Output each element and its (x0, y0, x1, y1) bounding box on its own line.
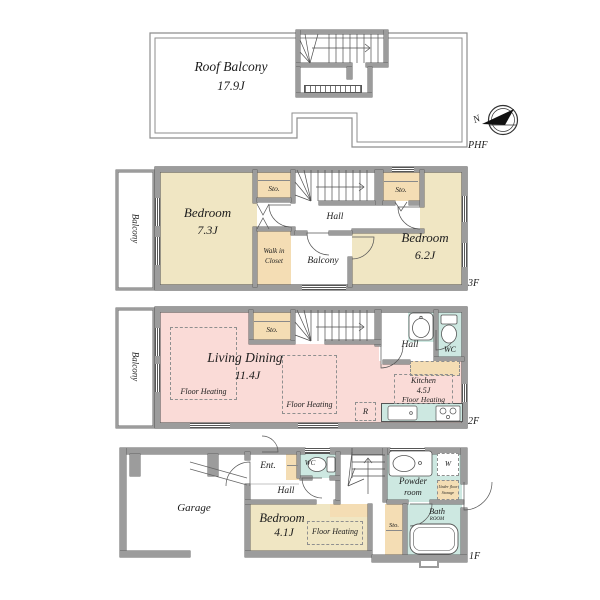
wall (319, 201, 375, 205)
floor-label-phf: PHF (468, 141, 498, 151)
living-dining-area: 11.4J (200, 369, 295, 381)
wall (120, 551, 190, 557)
walk-in-closet-label-1: Walk in (258, 248, 290, 255)
refrigerator-label: R (355, 407, 376, 416)
wall (296, 30, 388, 34)
wc-2f-label: WC (440, 346, 460, 354)
storage-2f-label: Sto. (254, 326, 290, 334)
window (190, 423, 230, 428)
bedroom-6-2-label: Bedroom (380, 231, 470, 244)
floor-label-2f: 2F (468, 417, 494, 427)
kitchen-area: 4.5J (396, 387, 451, 395)
floor-plan: Roof Balcony 17.9J N PHF Balcony Bedroom… (0, 0, 600, 600)
garage-pillar (208, 454, 218, 476)
kitchen-counter (381, 403, 463, 422)
stair-opening-grate (304, 85, 362, 93)
wall (245, 500, 316, 504)
wall (329, 231, 352, 235)
wall (257, 227, 291, 231)
living-dining-label: Living Dining (195, 351, 295, 365)
storage-3f-left-label: Sto. (258, 185, 290, 193)
bedroom-6-2-area: 6.2J (380, 249, 470, 261)
wall (384, 30, 388, 67)
storage-3f-right-label: Sto. (384, 186, 418, 194)
wall (291, 310, 295, 340)
wall (249, 310, 253, 344)
wall (295, 231, 307, 235)
garage-pillar (130, 454, 140, 476)
wall (296, 63, 352, 67)
wall (409, 201, 420, 205)
pipe-space (419, 559, 439, 568)
under-floor-storage-label-2: Storage (437, 491, 459, 495)
storage-1f-label: Sto. (384, 523, 404, 530)
floor-label-3f: 3F (468, 279, 494, 289)
wall (403, 504, 407, 557)
wall (325, 340, 381, 344)
wall (296, 30, 300, 67)
bath-room-label-2: ROOM (425, 517, 449, 522)
shelf-line (254, 321, 290, 322)
window (155, 328, 160, 356)
wall (334, 500, 340, 504)
balcony-3f-left-label: Balcony (131, 199, 140, 259)
window (298, 423, 338, 428)
shelf-line (258, 180, 290, 181)
wall (430, 500, 464, 504)
wall (253, 227, 257, 287)
roof-balcony-label: Roof Balcony (166, 60, 296, 74)
floor-heating-center-label: Floor Heating (284, 401, 335, 409)
window (155, 364, 160, 392)
floor-heating-1f-label: Floor Heating (309, 528, 361, 536)
floor-heating-left-label: Floor Heating (172, 388, 235, 396)
bedroom-7-3-label: Bedroom (160, 206, 255, 219)
wall (245, 551, 372, 557)
wall (375, 170, 383, 205)
wall (249, 340, 295, 344)
kitchen-label: Kitchen (396, 377, 451, 385)
wall (383, 201, 395, 205)
walk-in-closet-label-2: Closet (258, 258, 290, 265)
wall (383, 360, 410, 364)
hall-2f-label: Hall (385, 341, 435, 351)
window (392, 167, 414, 172)
wall (347, 67, 352, 79)
balcony-2f-left-label: Balcony (131, 337, 140, 397)
garage-label: Garage (159, 503, 229, 514)
hall-3f-label: Hall (305, 213, 365, 223)
shelf-line (384, 181, 418, 182)
roof-balcony-area: 17.9J (166, 80, 296, 93)
wall (245, 452, 250, 460)
powder-room-label-1: Powder (387, 477, 439, 486)
window (390, 448, 425, 454)
under-floor-storage-label-1: Under floor (437, 485, 459, 489)
wall (420, 170, 424, 207)
washer-label: W (438, 460, 458, 468)
floor-label-1f: 1F (469, 552, 495, 562)
balcony-3f-center-label: Balcony (297, 257, 349, 267)
hall-1f-label: Hall (262, 487, 310, 497)
wall (120, 448, 126, 557)
window (305, 448, 330, 454)
bedroom-7-3-area: 7.3J (160, 224, 255, 236)
wall (257, 198, 291, 202)
shelf-line (386, 530, 402, 531)
window (462, 196, 467, 222)
wall (368, 504, 372, 557)
wall (291, 170, 295, 203)
window (302, 285, 346, 290)
kitchen-floor-heating-label: Floor Heating (394, 396, 453, 404)
window (155, 237, 160, 265)
window (462, 384, 467, 402)
wall (300, 476, 312, 480)
bedroom-4-1-label: Bedroom (238, 512, 326, 525)
bath-room-label-1: Bath (424, 507, 450, 516)
bedroom-closet (330, 504, 368, 517)
wc-1f-label: WC (301, 460, 319, 467)
wall (383, 448, 387, 502)
wall (330, 476, 340, 480)
entrance-label: Ent. (247, 462, 289, 472)
powder-room-label-2: room (389, 488, 437, 497)
wall (296, 93, 372, 97)
wall (461, 508, 467, 562)
wall (461, 448, 467, 484)
